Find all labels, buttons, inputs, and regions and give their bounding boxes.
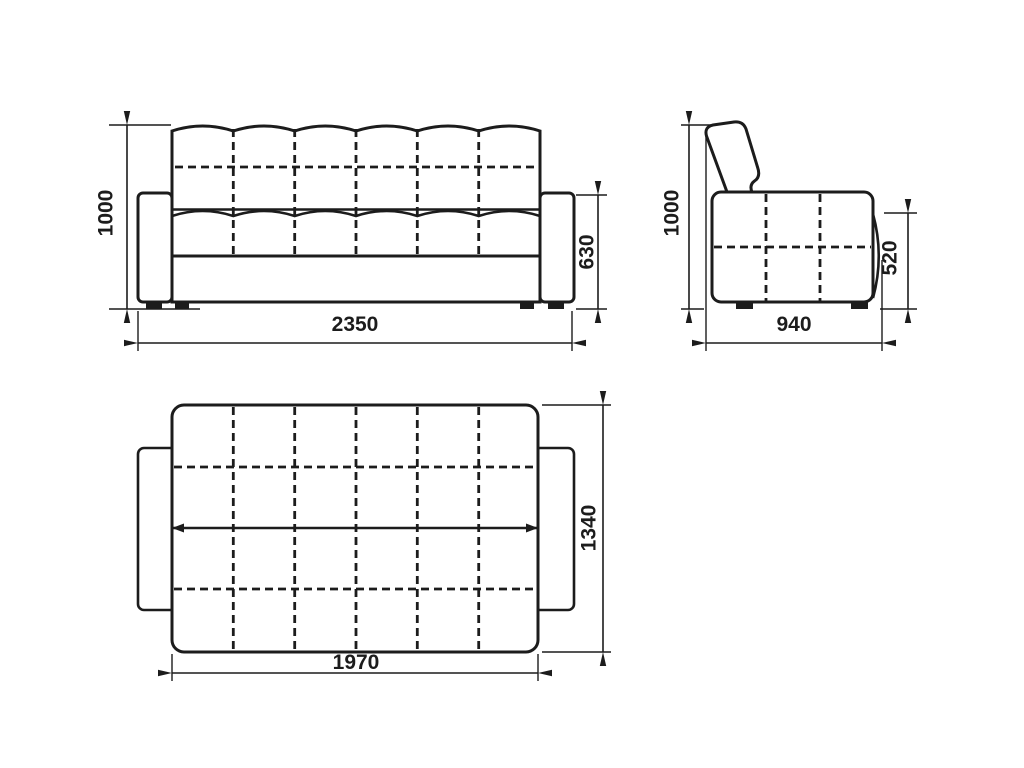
front-dim-armrest-height: 630	[576, 195, 608, 309]
front-width-label: 2350	[332, 313, 379, 336]
front-left-armrest	[138, 193, 172, 302]
side-backrest	[706, 122, 759, 192]
top-right-armrest	[534, 448, 574, 610]
side-depth-label: 940	[776, 313, 811, 336]
side-dim-height: 1000	[661, 125, 712, 309]
top-view: 1340 1970	[138, 405, 611, 681]
top-length-label: 1970	[333, 651, 380, 674]
technical-drawing: 1000 630 2350	[0, 0, 1024, 768]
top-dim-length: 1970	[172, 651, 538, 681]
front-view: 1000 630 2350	[95, 125, 608, 351]
front-height-label: 1000	[95, 190, 118, 237]
front-right-armrest	[540, 193, 574, 302]
side-dim-armrest-height: 520	[879, 213, 918, 309]
front-armrest-height-label: 630	[576, 234, 599, 269]
side-height-label: 1000	[661, 190, 684, 237]
front-dim-width: 2350	[138, 311, 572, 351]
drawing-canvas: 1000 630 2350	[0, 0, 1024, 768]
side-view: 1000 520 940	[661, 122, 918, 351]
top-depth-label: 1340	[578, 505, 601, 552]
